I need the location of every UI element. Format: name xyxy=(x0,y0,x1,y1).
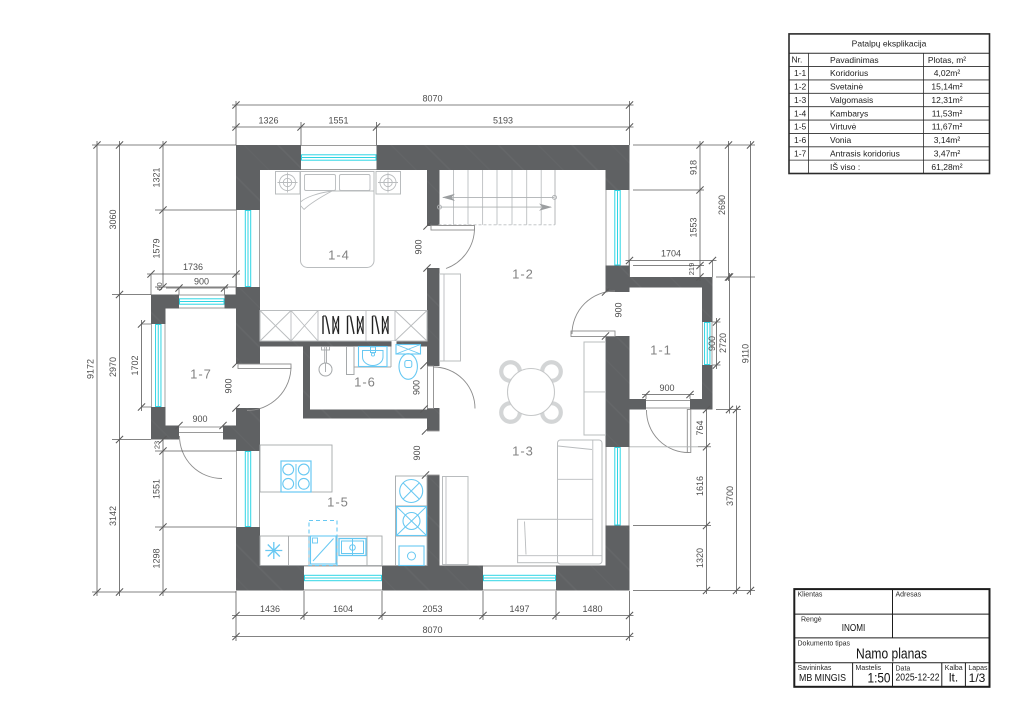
svg-text:918: 918 xyxy=(689,160,699,175)
svg-text:2690: 2690 xyxy=(717,195,727,215)
svg-text:1702: 1702 xyxy=(130,355,140,375)
svg-text:900: 900 xyxy=(224,378,234,393)
svg-text:1:50: 1:50 xyxy=(868,671,891,686)
svg-text:900: 900 xyxy=(412,445,422,460)
svg-text:Namo planas: Namo planas xyxy=(856,647,927,663)
svg-text:1-3: 1-3 xyxy=(794,95,807,105)
svg-text:Data: Data xyxy=(896,666,911,673)
svg-text:3142: 3142 xyxy=(108,506,118,526)
svg-text:1579: 1579 xyxy=(152,238,162,258)
svg-text:2025-12-22: 2025-12-22 xyxy=(896,673,940,684)
svg-text:Vonia: Vonia xyxy=(830,135,852,145)
svg-text:11,67m²: 11,67m² xyxy=(932,122,963,132)
svg-text:1736: 1736 xyxy=(183,262,203,272)
svg-text:219: 219 xyxy=(687,263,696,276)
svg-text:900: 900 xyxy=(412,380,422,395)
svg-text:Patalpų eksplikacija: Patalpų eksplikacija xyxy=(852,39,927,49)
svg-text:Valgomasis: Valgomasis xyxy=(830,95,873,105)
svg-text:1326: 1326 xyxy=(258,116,278,126)
svg-text:1604: 1604 xyxy=(333,604,353,614)
svg-text:1298: 1298 xyxy=(152,548,162,568)
svg-text:1-6: 1-6 xyxy=(354,375,376,390)
svg-text:900: 900 xyxy=(707,336,717,351)
svg-text:1-1: 1-1 xyxy=(650,343,672,358)
svg-text:1-1: 1-1 xyxy=(794,68,807,78)
svg-text:1553: 1553 xyxy=(689,217,699,237)
svg-text:1-6: 1-6 xyxy=(794,135,807,145)
svg-text:1-4: 1-4 xyxy=(794,108,807,118)
svg-text:3,14m²: 3,14m² xyxy=(934,135,961,145)
svg-text:1-4: 1-4 xyxy=(328,248,350,263)
svg-text:2053: 2053 xyxy=(422,604,442,614)
svg-text:764: 764 xyxy=(695,420,705,435)
svg-text:2970: 2970 xyxy=(108,357,118,377)
svg-text:900: 900 xyxy=(414,239,424,254)
svg-text:Klientas: Klientas xyxy=(798,592,823,599)
svg-text:Nr.: Nr. xyxy=(792,55,803,65)
svg-text:1616: 1616 xyxy=(695,476,705,496)
svg-text:1704: 1704 xyxy=(661,249,681,259)
svg-text:1321: 1321 xyxy=(152,167,162,187)
svg-text:1-5: 1-5 xyxy=(327,495,349,510)
svg-text:2720: 2720 xyxy=(718,333,728,353)
svg-text:1/3: 1/3 xyxy=(969,671,986,685)
svg-text:1-7: 1-7 xyxy=(794,148,807,158)
svg-text:1-5: 1-5 xyxy=(794,122,807,132)
svg-text:3060: 3060 xyxy=(108,209,118,229)
svg-text:900: 900 xyxy=(192,414,207,424)
svg-text:900: 900 xyxy=(194,277,209,287)
svg-text:Svetainė: Svetainė xyxy=(830,82,863,92)
svg-text:15,14m²: 15,14m² xyxy=(931,82,962,92)
svg-text:23: 23 xyxy=(153,441,162,449)
svg-text:1-3: 1-3 xyxy=(512,444,534,459)
svg-text:Savininkas: Savininkas xyxy=(798,665,832,672)
svg-text:3,47m²: 3,47m² xyxy=(934,148,961,158)
svg-text:Adresas: Adresas xyxy=(896,592,922,599)
svg-text:900: 900 xyxy=(614,302,624,317)
svg-text:MB MINGIS: MB MINGIS xyxy=(799,672,846,684)
svg-text:IŠ viso :: IŠ viso : xyxy=(830,162,860,172)
svg-text:Koridorius: Koridorius xyxy=(830,68,868,78)
svg-text:Dokumento tipas: Dokumento tipas xyxy=(798,641,851,648)
svg-text:900: 900 xyxy=(659,383,674,393)
svg-text:Kambarys: Kambarys xyxy=(830,108,868,118)
svg-text:Antrasis koridorius: Antrasis koridorius xyxy=(830,148,900,158)
svg-text:8070: 8070 xyxy=(422,94,442,104)
svg-text:1-2: 1-2 xyxy=(794,82,807,92)
svg-text:9110: 9110 xyxy=(741,344,751,363)
svg-text:61,28m²: 61,28m² xyxy=(931,162,962,172)
svg-text:12,31m²: 12,31m² xyxy=(931,95,962,105)
svg-text:3700: 3700 xyxy=(725,486,735,506)
svg-text:1551: 1551 xyxy=(328,116,348,126)
svg-text:11,53m²: 11,53m² xyxy=(932,108,963,118)
svg-text:8070: 8070 xyxy=(422,625,442,635)
svg-text:1551: 1551 xyxy=(152,479,162,499)
svg-text:1436: 1436 xyxy=(260,604,280,614)
svg-text:1-2: 1-2 xyxy=(512,267,534,282)
svg-text:60: 60 xyxy=(155,282,164,290)
svg-text:Plotas, m²: Plotas, m² xyxy=(928,55,966,65)
svg-text:1320: 1320 xyxy=(695,548,705,568)
svg-text:Virtuvė: Virtuvė xyxy=(830,122,857,132)
svg-text:lt.: lt. xyxy=(949,671,958,685)
svg-text:1480: 1480 xyxy=(582,604,602,614)
svg-text:INOMI: INOMI xyxy=(842,623,866,634)
svg-text:4,02m²: 4,02m² xyxy=(934,68,961,78)
svg-text:5193: 5193 xyxy=(493,116,513,126)
svg-text:1497: 1497 xyxy=(509,604,529,614)
svg-text:Rengė: Rengė xyxy=(801,617,822,624)
svg-text:1-7: 1-7 xyxy=(190,367,212,382)
svg-text:9172: 9172 xyxy=(86,359,96,379)
svg-text:Pavadinimas: Pavadinimas xyxy=(830,55,879,65)
